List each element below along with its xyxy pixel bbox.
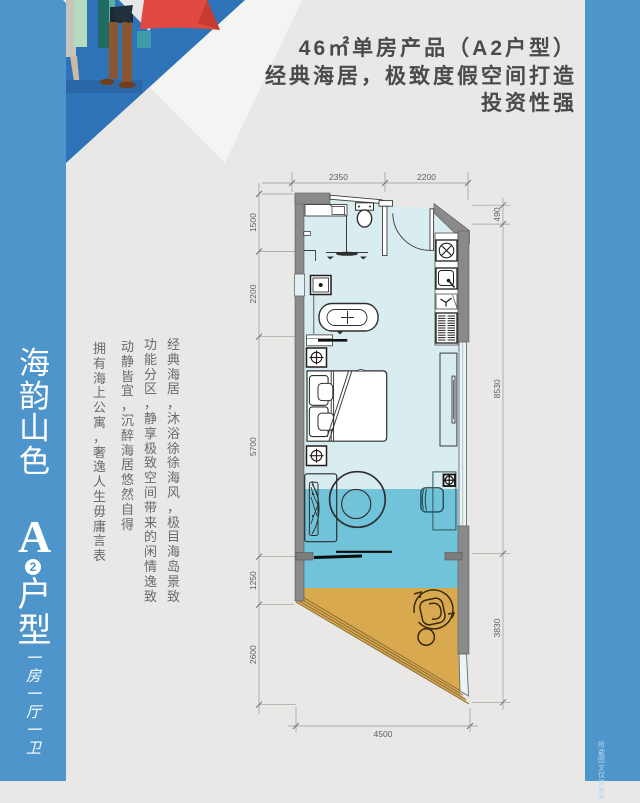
svg-text:2200: 2200 bbox=[248, 284, 258, 303]
svg-text:2600: 2600 bbox=[248, 645, 258, 664]
svg-text:4500: 4500 bbox=[374, 729, 393, 739]
svg-text:490: 490 bbox=[492, 207, 502, 221]
svg-text:1250: 1250 bbox=[248, 571, 258, 590]
svg-text:5700: 5700 bbox=[248, 437, 258, 456]
svg-text:8530: 8530 bbox=[492, 379, 502, 398]
svg-text:2200: 2200 bbox=[417, 172, 436, 182]
svg-text:2350: 2350 bbox=[329, 172, 348, 182]
svg-text:1500: 1500 bbox=[248, 213, 258, 232]
svg-text:3830: 3830 bbox=[492, 618, 502, 637]
